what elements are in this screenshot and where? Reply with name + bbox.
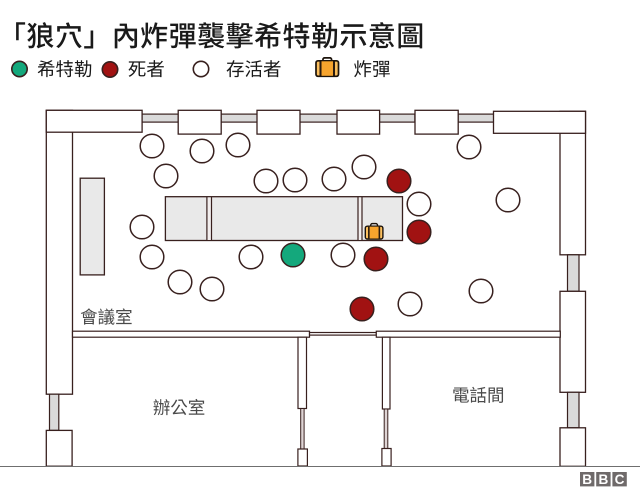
- svg-text:B: B: [582, 472, 592, 487]
- svg-text:B: B: [598, 472, 608, 487]
- svg-text:C: C: [615, 472, 625, 487]
